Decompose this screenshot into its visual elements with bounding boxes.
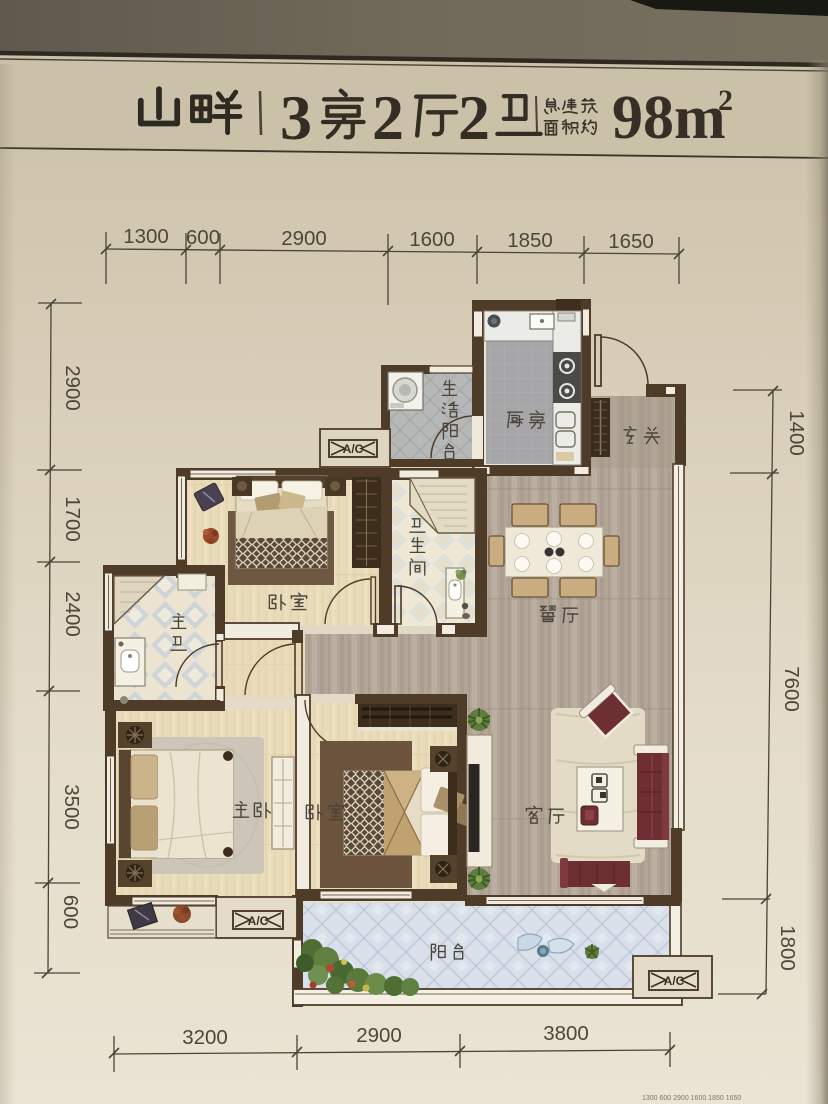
svg-text:3500: 3500 bbox=[60, 784, 83, 830]
svg-text:A/C: A/C bbox=[343, 442, 364, 456]
svg-text:1650: 1650 bbox=[608, 230, 654, 253]
svg-text:A/C: A/C bbox=[248, 914, 269, 928]
svg-text:2400: 2400 bbox=[61, 591, 84, 637]
svg-text:1600: 1600 bbox=[409, 228, 455, 251]
svg-text:7600: 7600 bbox=[780, 666, 803, 712]
svg-text:2: 2 bbox=[372, 82, 404, 153]
svg-text:1850: 1850 bbox=[507, 229, 553, 252]
svg-text:1300 600 2900 1600 18: 1300 600 2900 1600 1850 1650 bbox=[642, 1095, 741, 1102]
svg-text:1700: 1700 bbox=[61, 496, 84, 542]
svg-text:1300: 1300 bbox=[123, 225, 169, 248]
svg-text:600: 600 bbox=[186, 226, 220, 249]
svg-text:1400: 1400 bbox=[785, 410, 808, 456]
svg-text:1800: 1800 bbox=[776, 925, 799, 971]
svg-text:3: 3 bbox=[280, 82, 312, 153]
svg-text:3200: 3200 bbox=[182, 1026, 228, 1049]
svg-text:3800: 3800 bbox=[543, 1022, 589, 1045]
svg-text:2900: 2900 bbox=[281, 227, 327, 250]
svg-text:2900: 2900 bbox=[61, 365, 84, 411]
svg-text:98m: 98m bbox=[612, 84, 726, 152]
svg-text:2900: 2900 bbox=[356, 1024, 402, 1047]
svg-text:600: 600 bbox=[59, 895, 82, 929]
svg-text:A/C: A/C bbox=[664, 974, 685, 988]
svg-text:2: 2 bbox=[718, 84, 733, 117]
svg-text:2: 2 bbox=[458, 82, 490, 153]
